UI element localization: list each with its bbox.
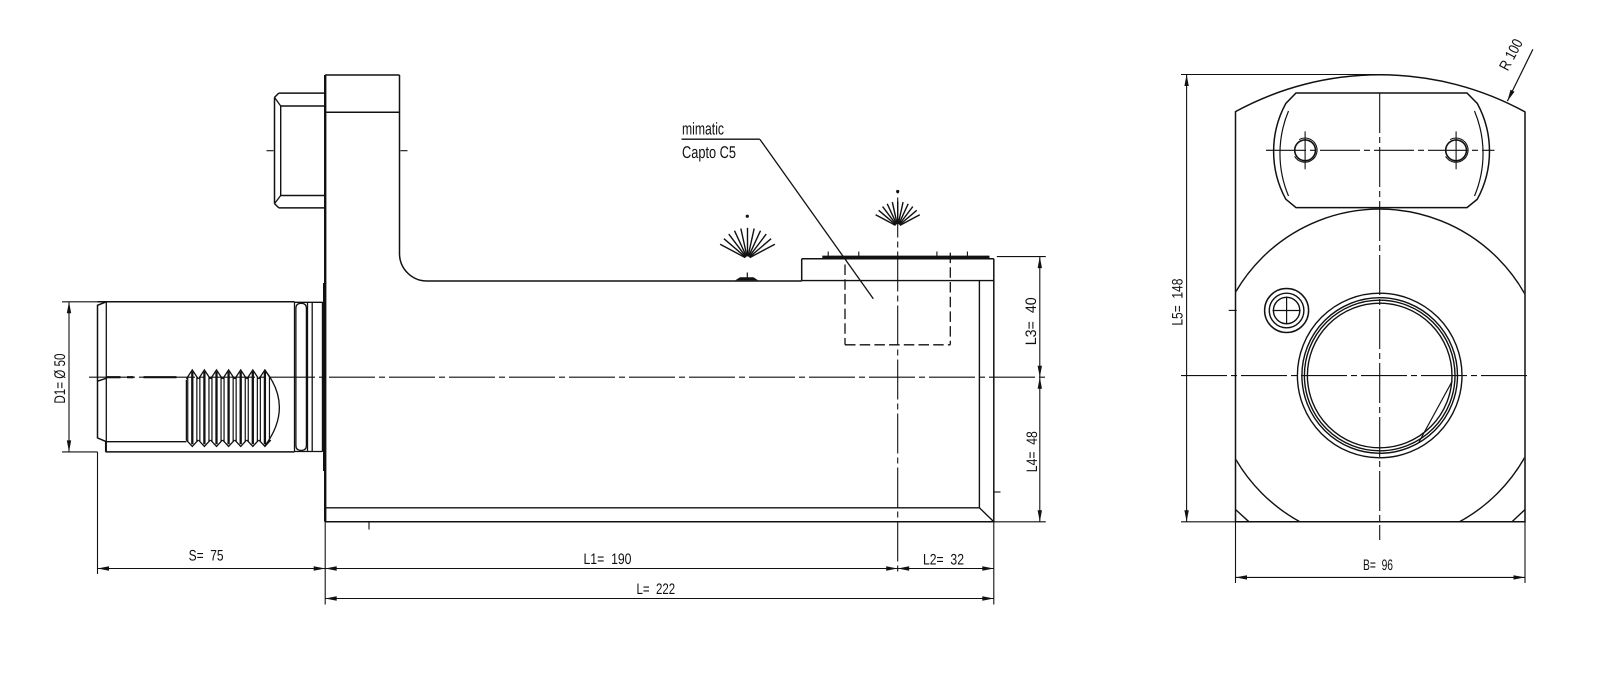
svg-text:B= 96: B= 96 bbox=[1363, 557, 1393, 574]
svg-text:Capto C5: Capto C5 bbox=[682, 143, 736, 162]
svg-text:D1= Ø 50: D1= Ø 50 bbox=[52, 353, 69, 403]
svg-text:L3= 40: L3= 40 bbox=[1023, 297, 1040, 345]
svg-text:mimatic: mimatic bbox=[682, 120, 724, 139]
svg-text:L5= 148: L5= 148 bbox=[1170, 279, 1187, 326]
svg-text:S= 75: S= 75 bbox=[189, 547, 224, 564]
svg-text:L1= 190: L1= 190 bbox=[584, 551, 632, 568]
svg-text:L2= 32: L2= 32 bbox=[923, 551, 964, 568]
svg-text:L4= 48: L4= 48 bbox=[1024, 431, 1041, 472]
svg-text:L= 222: L= 222 bbox=[637, 581, 676, 598]
